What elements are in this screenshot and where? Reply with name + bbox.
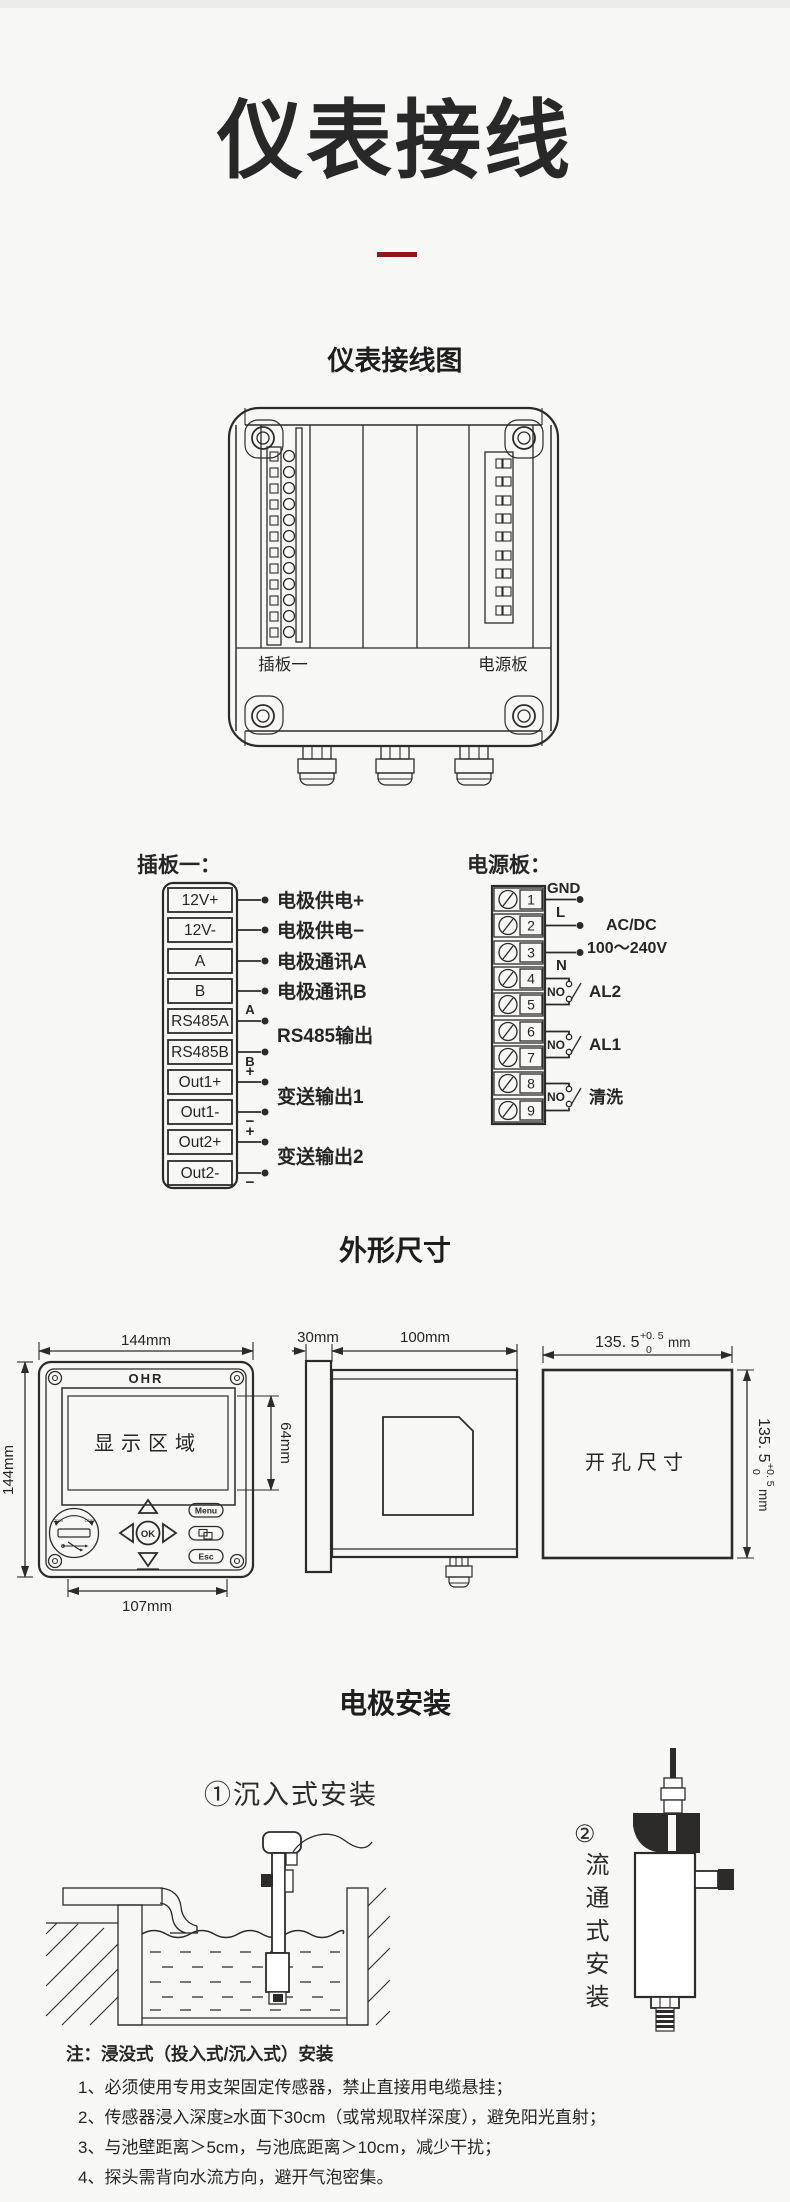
enclosure-diagram: 插板一 电源板 (229, 408, 558, 785)
relay-no-label: NO (547, 1038, 565, 1052)
relay-al1: NO AL1 (545, 1032, 621, 1058)
cutout-label: 开孔尺寸 (585, 1451, 689, 1474)
display-area-label: 显示区域 (94, 1432, 202, 1455)
cutout-unit: mm (668, 1335, 691, 1350)
ground-hatch-right (368, 1888, 390, 2025)
wire-polarity-label: − (246, 1174, 255, 1191)
terminal-number: 2 (527, 918, 535, 934)
ground-hatch-left (46, 1923, 118, 2025)
side-gland-icon (446, 1557, 472, 1587)
terminal-number: 4 (527, 971, 535, 987)
terminal-number: 1 (527, 892, 535, 908)
dim-height-label: 144mm (0, 1445, 17, 1495)
function-keys: Menu Esc (189, 1504, 223, 1564)
diagram-layer: 插板一 电源板 插板一： 12V+ 12V- A (0, 0, 790, 2202)
supply-label: AC/DC (606, 917, 657, 934)
relay-no-label: NO (547, 1090, 565, 1104)
wire-label: 变送输出2 (277, 1145, 364, 1168)
plugboard-detail: 插板一： 12V+ 12V- A B RS485A RS485B Out1+ O… (137, 854, 373, 1191)
powerboard-heading: 电源板： (467, 854, 551, 877)
relay-label: 清洗 (589, 1087, 623, 1107)
down-arrow-icon (139, 1553, 157, 1566)
wire-polarity-label: A (245, 1002, 255, 1017)
wire-label: 电极供电− (277, 919, 364, 942)
dial-open-label: Open (53, 1518, 64, 1523)
wire-label-neutral: N (556, 957, 567, 974)
usb-dial-icon: Open Close (50, 1509, 99, 1558)
powerboard-detail: 电源板： 1 2 3 4 5 6 7 8 9 (467, 854, 667, 1124)
terminal-number: 3 (527, 945, 535, 961)
wire-label: 电极通讯B (277, 980, 367, 1003)
menu-key-label: Menu (195, 1506, 217, 1516)
relay-label: AL2 (589, 982, 621, 1001)
cutout-dim-right: 135. 5 +0. 5 0 mm (750, 1418, 776, 1512)
esc-key-label: Esc (198, 1552, 213, 1562)
dim-panel-label: 107mm (122, 1598, 172, 1615)
dim-bezel-label: 30mm (297, 1329, 339, 1346)
right-arrow-icon (163, 1524, 176, 1542)
terminal-cell-label: 12V+ (182, 892, 219, 909)
wire-label: 变送输出1 (277, 1085, 364, 1108)
terminal-number: 6 (527, 1024, 535, 1040)
ok-key-label: OK (141, 1529, 155, 1540)
plugboard-heading: 插板一： (137, 854, 221, 877)
supply-label: 100～240V (587, 940, 667, 957)
enclosure-left-slot-label: 插板一 (258, 655, 308, 674)
water-dashes (150, 1952, 340, 2010)
terminal-cell-label: 12V- (184, 922, 216, 939)
relay-al2: NO AL2 (545, 979, 621, 1005)
inlet-pipe (160, 1888, 198, 1933)
relay-clean: NO 清洗 (545, 1084, 623, 1111)
wire-label: 电极供电+ (277, 889, 364, 912)
terminal-number: 5 (527, 997, 535, 1013)
terminal-number: 8 (527, 1076, 535, 1092)
nav-keys: OK (120, 1500, 176, 1569)
left-arrow-icon (120, 1524, 133, 1542)
wire-polarity-label: + (246, 1063, 255, 1080)
dim-width-label: 144mm (121, 1332, 171, 1349)
terminal-cell-label: A (195, 953, 206, 970)
terminal-cell-label: Out1- (181, 1104, 220, 1121)
wire-label-gnd: GND (547, 880, 581, 897)
cutout-tol-zero: 0 (646, 1344, 652, 1356)
terminal-cell-label: Out2- (181, 1165, 220, 1182)
dial-close-label: Close (85, 1518, 96, 1523)
relay-no-label: NO (547, 985, 565, 999)
page: 仪表接线 仪表接线图 外形尺寸 电极安装 ①沉入式安装 ② 流通式安装 注：浸没… (0, 0, 790, 2202)
dim-display-label: 64mm (277, 1422, 294, 1464)
dim-body-label: 100mm (400, 1329, 450, 1346)
immersion-install-diagram (46, 1832, 390, 2025)
flow-cell-diagram (633, 1748, 734, 2031)
cutout-tol-zero: 0 (750, 1469, 762, 1475)
electrode-probe (261, 1832, 372, 2004)
powerboard-cells: 1 2 3 4 5 6 7 8 9 (494, 888, 543, 1122)
wire-label: 电极通讯A (277, 950, 367, 973)
cutout-tol-plus: +0. 5 (764, 1463, 776, 1487)
terminal-cell-label: Out2+ (179, 1134, 222, 1151)
front-view: 144mm 144mm OHR 显示区域 64mm 107mm (0, 1332, 294, 1615)
terminal-cell-label: RS485A (171, 1013, 229, 1030)
page-switch-icon (199, 1530, 212, 1540)
wire-label-live: L (556, 904, 565, 921)
side-view: 30mm 100mm (292, 1329, 517, 1587)
enclosure-right-slot-label: 电源板 (478, 655, 528, 674)
wire-label: RS485输出 (277, 1024, 373, 1047)
cutout-dim-value: 135. 5 (595, 1334, 640, 1351)
brand-logo: OHR (129, 1371, 164, 1386)
cable-gland-icon (298, 746, 493, 785)
terminal-number: 7 (527, 1050, 535, 1066)
powerboard-connector-strip (485, 452, 513, 623)
up-arrow-icon (139, 1500, 157, 1513)
cutout-tol-plus: +0. 5 (640, 1330, 664, 1342)
terminal-cell-label: RS485B (171, 1044, 229, 1061)
plugboard-connector-strip (267, 428, 302, 645)
terminal-number: 9 (527, 1103, 535, 1119)
relay-label: AL1 (589, 1035, 621, 1054)
wire-polarity-label: + (246, 1123, 255, 1140)
cutout-dim-value: 135. 5 (755, 1418, 772, 1463)
terminal-cell-label: Out1+ (179, 1074, 222, 1091)
cutout-unit: mm (756, 1489, 771, 1512)
terminal-cell-label: B (195, 983, 205, 1000)
cutout-view: 135. 5 +0. 5 0 mm 开孔尺寸 135. 5 +0. 5 0 mm (543, 1330, 776, 1558)
